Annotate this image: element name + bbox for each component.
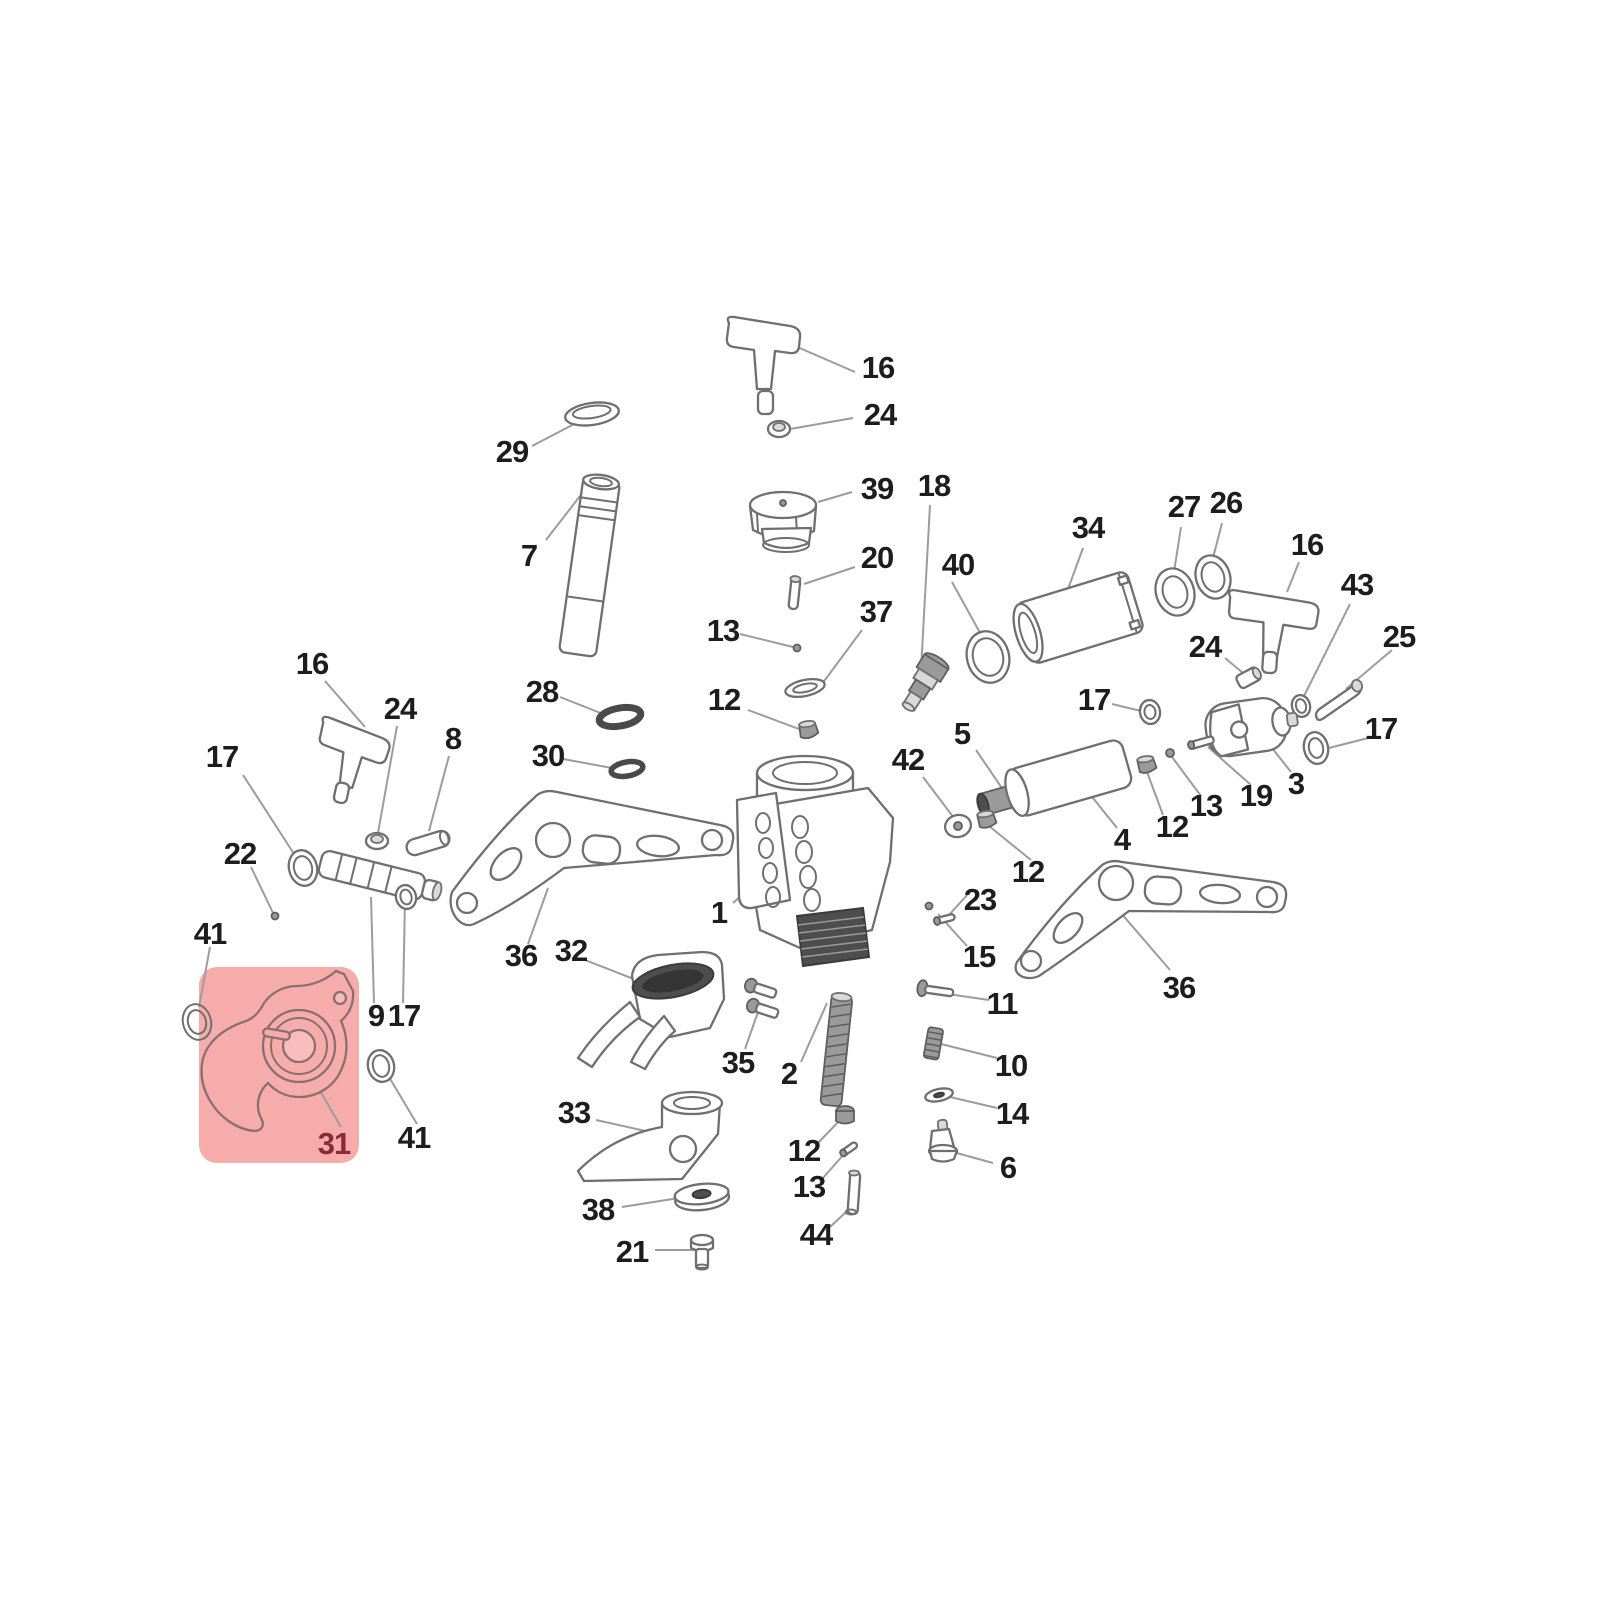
part-o-ring-41-bottom	[365, 1047, 398, 1084]
part-ball-13-right	[1166, 749, 1174, 757]
part-label-21[interactable]: 21	[616, 1234, 648, 1270]
part-spring-10	[923, 1027, 943, 1060]
part-o-ring-28	[598, 704, 642, 729]
part-o-ring-37	[784, 676, 826, 700]
part-label-7[interactable]: 7	[521, 538, 537, 574]
leader-line	[822, 630, 862, 684]
leader-line	[823, 1153, 845, 1178]
part-label-8[interactable]: 8	[445, 721, 461, 757]
part-label-24-left[interactable]: 24	[384, 691, 416, 727]
part-label-35[interactable]: 35	[722, 1045, 754, 1081]
part-ball-13-center	[794, 645, 801, 652]
part-washer-38	[674, 1181, 730, 1213]
leader-line	[251, 867, 274, 915]
leader-line	[389, 1077, 417, 1124]
part-label-44[interactable]: 44	[800, 1217, 832, 1253]
part-t-handle-right	[1224, 590, 1320, 676]
part-label-22[interactable]: 22	[224, 836, 256, 872]
part-label-39[interactable]: 39	[861, 471, 893, 507]
part-nut-left	[366, 833, 388, 849]
part-screw-11	[916, 980, 954, 1001]
part-label-24-right[interactable]: 24	[1189, 629, 1221, 665]
part-pin-20	[787, 576, 800, 610]
leader-line	[921, 505, 930, 670]
leader-line	[952, 582, 984, 640]
part-label-12-mid[interactable]: 12	[1012, 854, 1044, 890]
part-label-16-left[interactable]: 16	[296, 646, 328, 682]
part-washer-42	[943, 812, 974, 840]
part-label-2[interactable]: 2	[781, 1056, 797, 1092]
part-label-36-left[interactable]: 36	[505, 938, 537, 974]
leader-line	[818, 492, 852, 502]
part-label-6[interactable]: 6	[1000, 1150, 1016, 1186]
part-piston-5-cylinder-4	[971, 738, 1134, 828]
part-o-ring-17-left	[285, 847, 321, 889]
part-swivel-clamp-32	[578, 952, 724, 1069]
leader-line	[1225, 658, 1243, 673]
leader-line	[429, 756, 449, 831]
part-seal-ring-27	[1150, 563, 1201, 620]
leader-line	[1213, 523, 1222, 558]
part-label-26[interactable]: 26	[1210, 485, 1242, 521]
part-label-13-center[interactable]: 13	[707, 613, 739, 649]
part-ball-22	[272, 913, 279, 920]
part-label-40[interactable]: 40	[942, 547, 974, 583]
diagram-canvas	[0, 0, 1600, 1600]
part-ball-15	[926, 903, 933, 910]
part-o-ring-30	[610, 759, 644, 778]
part-plug-12-right	[1137, 755, 1157, 774]
leader-line	[941, 1044, 997, 1058]
part-arm-36-left	[451, 791, 734, 925]
leader-line	[563, 759, 612, 768]
part-label-3[interactable]: 3	[1288, 766, 1304, 802]
part-nut-top	[768, 421, 790, 437]
leader-line	[532, 422, 578, 446]
leader-line	[748, 710, 799, 729]
part-cylinder-tube-7	[559, 473, 621, 657]
part-washer-14	[924, 1086, 954, 1104]
part-label-34[interactable]: 34	[1072, 510, 1104, 546]
exploded-parts-diagram: 1624293918720403427261643251337281224171…	[0, 0, 1600, 1600]
leader-line	[745, 1012, 758, 1049]
part-o-ring-40	[961, 626, 1015, 687]
part-label-17-far-right[interactable]: 17	[1365, 711, 1397, 747]
part-label-13-bottom[interactable]: 13	[793, 1169, 825, 1205]
part-label-15[interactable]: 15	[963, 939, 995, 975]
leader-line	[950, 1097, 997, 1108]
part-label-32[interactable]: 32	[555, 933, 587, 969]
part-label-27[interactable]: 27	[1168, 489, 1200, 525]
leader-line	[371, 897, 374, 1003]
leader-line	[528, 888, 548, 944]
part-quick-coupler-18	[895, 650, 951, 717]
leader-line	[1174, 527, 1181, 572]
part-label-18[interactable]: 18	[918, 468, 950, 504]
part-label-25[interactable]: 25	[1383, 619, 1415, 655]
part-label-1[interactable]: 1	[711, 895, 727, 931]
part-t-handle-top	[727, 317, 800, 414]
part-arm-36-right	[1016, 861, 1287, 978]
part-swivel-clamp-33	[578, 1092, 722, 1181]
part-label-4[interactable]: 4	[1114, 822, 1130, 858]
leader-line	[830, 1212, 846, 1227]
part-label-9[interactable]: 9	[368, 998, 384, 1034]
part-pin-23	[933, 913, 955, 926]
part-pump-body-3	[1203, 694, 1301, 759]
part-label-36-right[interactable]: 36	[1163, 970, 1195, 1006]
part-label-10[interactable]: 10	[995, 1048, 1027, 1084]
leader-line	[953, 1152, 993, 1163]
part-label-41-bottom[interactable]: 41	[398, 1120, 430, 1156]
part-label-37[interactable]: 37	[860, 594, 892, 630]
part-label-12-center[interactable]: 12	[708, 682, 740, 718]
part-release-valve-6	[929, 1120, 957, 1162]
part-pin-8	[405, 829, 452, 857]
part-sleeve-34	[1008, 570, 1145, 667]
part-label-12-right[interactable]: 12	[1156, 809, 1188, 845]
part-main-valve-body-1	[737, 756, 893, 966]
part-taper-pin-25	[1309, 678, 1368, 720]
part-label-33[interactable]: 33	[558, 1095, 590, 1131]
part-label-16-top[interactable]: 16	[862, 350, 894, 386]
part-label-17-mid[interactable]: 17	[1078, 682, 1110, 718]
leader-line	[1112, 704, 1141, 711]
leader-line	[804, 567, 855, 584]
part-label-30[interactable]: 30	[532, 738, 564, 774]
part-o-ring-17-far-right	[1301, 730, 1331, 766]
leader-line	[923, 777, 954, 818]
part-plug-12-center	[799, 720, 819, 739]
leader-line	[740, 634, 793, 647]
part-label-23[interactable]: 23	[964, 882, 996, 918]
part-label-24-top[interactable]: 24	[864, 397, 896, 433]
leader-line	[1089, 793, 1117, 828]
leader-line	[560, 697, 603, 714]
part-backup-ring-29	[564, 399, 621, 428]
part-label-41-left[interactable]: 41	[194, 916, 226, 952]
part-label-19[interactable]: 19	[1240, 778, 1272, 814]
part-o-ring-17-mid	[1138, 698, 1162, 725]
part-screws-35	[743, 977, 780, 1020]
part-label-43[interactable]: 43	[1341, 567, 1373, 603]
part-label-17-bottom[interactable]: 17	[388, 998, 420, 1034]
part-label-42[interactable]: 42	[892, 742, 924, 778]
part-t-handle-left	[306, 716, 393, 810]
part-label-12-bottom[interactable]: 12	[788, 1133, 820, 1169]
part-pin-44	[846, 1171, 860, 1215]
part-label-20[interactable]: 20	[861, 540, 893, 576]
part-valve-spool-9	[317, 849, 444, 905]
part-label-14[interactable]: 14	[996, 1096, 1028, 1132]
part-label-5[interactable]: 5	[954, 716, 970, 752]
part-label-16-right[interactable]: 16	[1291, 527, 1323, 563]
leader-line	[790, 418, 853, 429]
part-label-17-left[interactable]: 17	[206, 739, 238, 775]
part-label-31[interactable]: 31	[318, 1126, 350, 1162]
part-label-28[interactable]: 28	[526, 674, 558, 710]
leader-line	[795, 346, 855, 372]
leader-line	[403, 899, 405, 1003]
part-bolt-21	[691, 1235, 713, 1270]
leader-line	[1287, 562, 1299, 592]
part-label-13-right[interactable]: 13	[1190, 788, 1222, 824]
leader-line	[622, 1198, 679, 1207]
leader-line	[801, 1003, 827, 1062]
part-label-11[interactable]: 11	[987, 986, 1018, 1022]
part-filler-cap-39	[750, 492, 816, 552]
part-plug-12-bottom	[836, 1106, 854, 1124]
part-label-38[interactable]: 38	[582, 1192, 614, 1228]
part-label-29[interactable]: 29	[496, 434, 528, 470]
part-pin-13-bottom	[839, 1141, 859, 1158]
